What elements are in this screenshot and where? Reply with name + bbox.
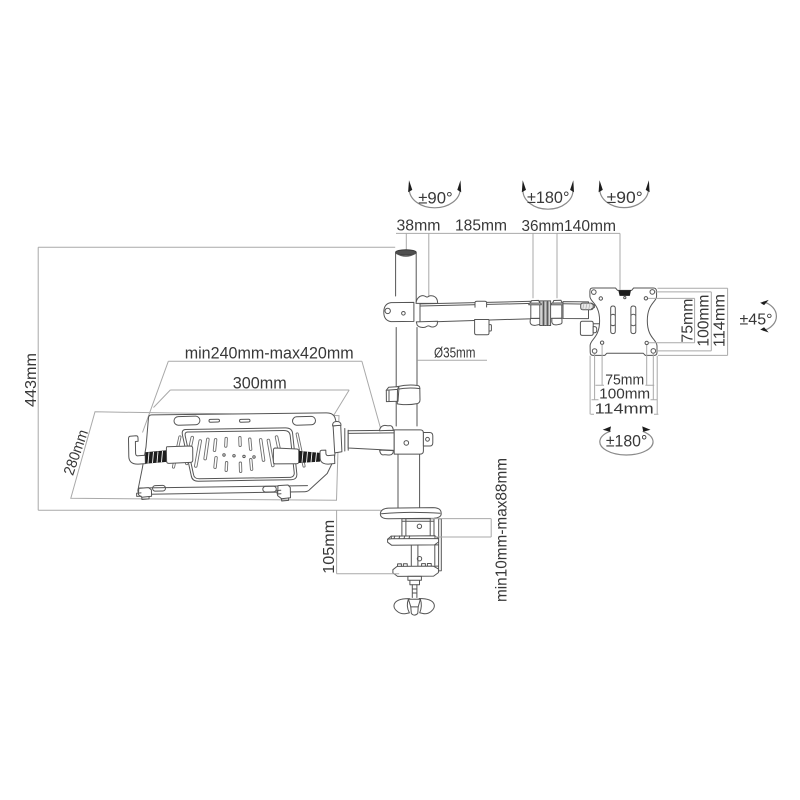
svg-text:±90°: ±90° <box>418 189 453 208</box>
svg-text:±90°: ±90° <box>607 188 643 207</box>
svg-text:Ø35mm: Ø35mm <box>434 346 476 362</box>
svg-text:±45°: ±45° <box>740 311 773 328</box>
svg-text:140mm: 140mm <box>564 218 616 235</box>
svg-text:36mm: 36mm <box>521 218 564 235</box>
svg-text:min240mm-max420mm: min240mm-max420mm <box>185 344 354 363</box>
svg-text:300mm: 300mm <box>233 374 287 393</box>
svg-text:±180°: ±180° <box>606 432 648 450</box>
svg-text:114mm: 114mm <box>712 294 729 347</box>
svg-text:443mm: 443mm <box>23 353 40 407</box>
svg-text:±180°: ±180° <box>527 188 570 207</box>
svg-text:105mm: 105mm <box>321 520 338 574</box>
svg-text:38mm: 38mm <box>397 217 441 234</box>
svg-text:185mm: 185mm <box>455 217 507 234</box>
svg-text:75mm: 75mm <box>680 299 697 343</box>
svg-text:100mm: 100mm <box>696 295 713 347</box>
svg-text:114mm: 114mm <box>595 401 654 418</box>
svg-text:min10mm-max88mm: min10mm-max88mm <box>494 458 511 602</box>
